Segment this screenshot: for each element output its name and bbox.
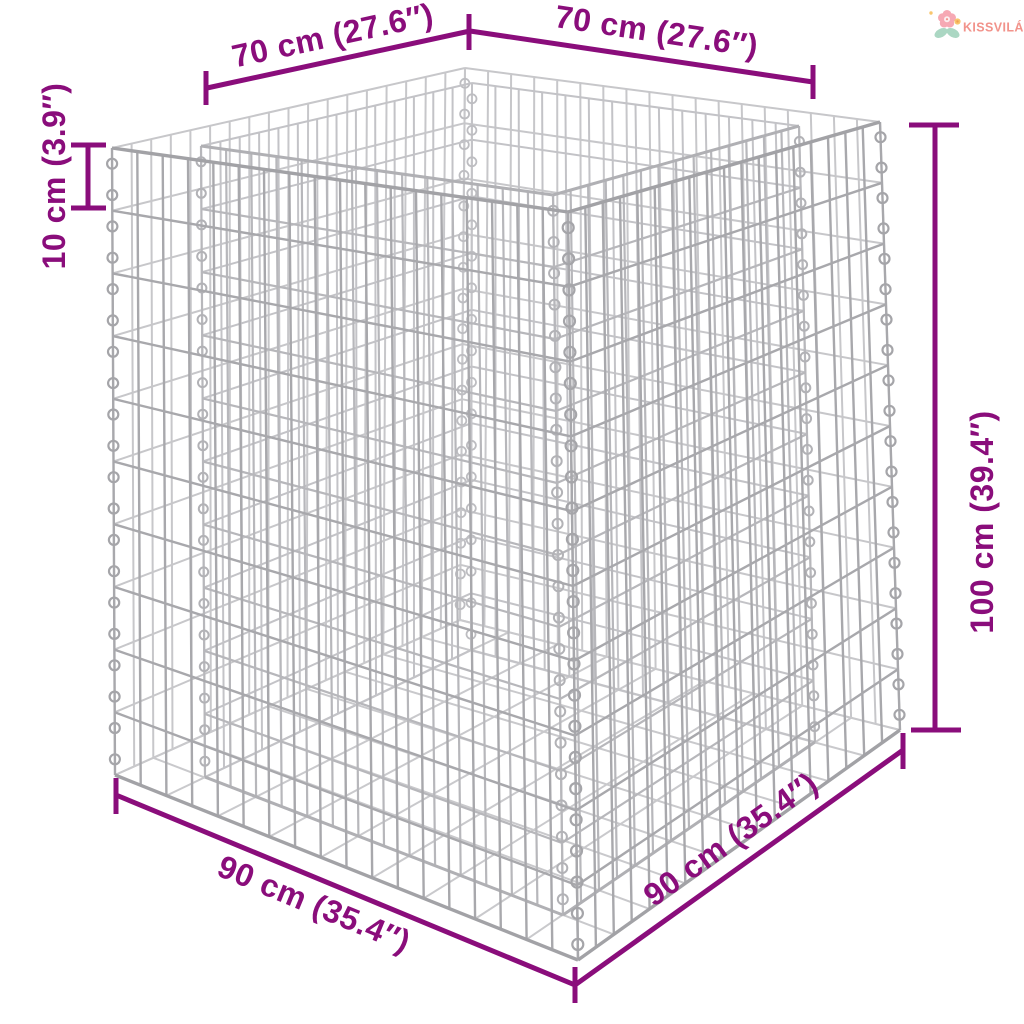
- brand-name: KISSVILÁG: [963, 20, 1024, 35]
- dimension-label-left: 10 cm (3.9″): [36, 83, 72, 270]
- dimension-line-bottom-right: [575, 733, 903, 985]
- dimension-line-right-100cm: [909, 125, 961, 730]
- brand-logo: KISSVILÁG: [929, 10, 1024, 40]
- gabion-wire-mesh-drawing: [107, 68, 904, 960]
- product-dimension-diagram: 70 cm (27.6″) 70 cm (27.6″) 10 cm (3.9″)…: [0, 0, 1024, 1024]
- dimension-label-top-right: 70 cm (27.6″): [553, 0, 761, 64]
- dimension-line-left-10cm: [71, 145, 106, 208]
- diagram-canvas: 70 cm (27.6″) 70 cm (27.6″) 10 cm (3.9″)…: [0, 0, 1024, 1024]
- flower-logo-icon: [929, 10, 961, 40]
- dimension-label-right: 100 cm (39.4″): [964, 410, 1000, 633]
- dimension-label-top-left: 70 cm (27.6″): [229, 0, 437, 75]
